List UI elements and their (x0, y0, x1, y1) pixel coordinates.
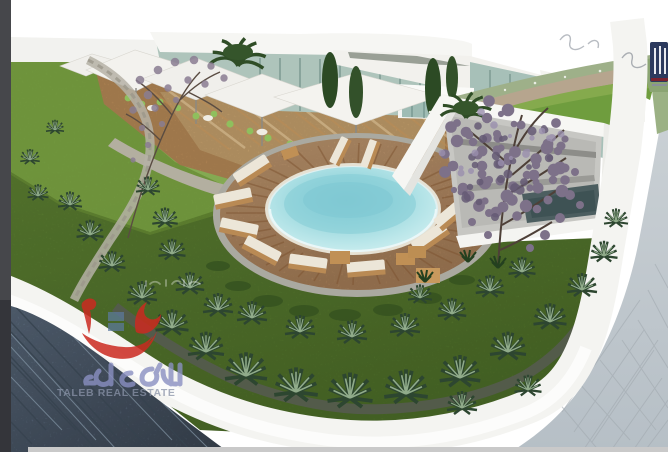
svg-text:TALEB REAL ESTATE: TALEB REAL ESTATE (57, 387, 176, 399)
